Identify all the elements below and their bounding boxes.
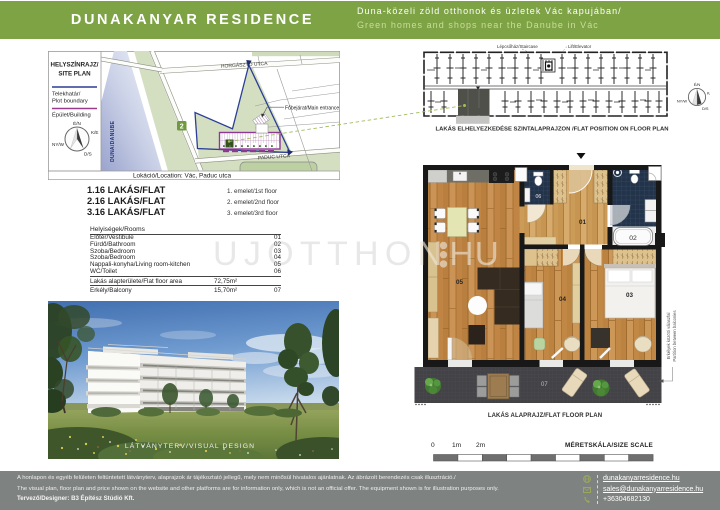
svg-text:NY/W: NY/W [52, 142, 65, 147]
svg-text:06: 06 [536, 194, 542, 200]
svg-text:LÁTVÁNYTERV/VISUAL DESIGN: LÁTVÁNYTERV/VISUAL DESIGN [125, 441, 255, 450]
svg-text:SITE PLAN: SITE PLAN [58, 71, 91, 78]
svg-text:K/E: K/E [91, 130, 98, 135]
svg-text:Telekhatár/: Telekhatár/ [52, 92, 81, 98]
svg-text:Erkélyek közötti válaszfal: Erkélyek közötti válaszfal [666, 313, 671, 360]
svg-text:Lépcsőház/Staircase: Lépcsőház/Staircase [497, 44, 538, 49]
svg-text:03: 03 [626, 292, 634, 299]
svg-text:Lokáció/Location: Vác, Paduc u: Lokáció/Location: Vác, Paduc utca [133, 172, 231, 179]
svg-text:DUNA/DANUBE: DUNA/DANUBE [110, 120, 116, 162]
svg-text:Főbejárat/Main entrance: Főbejárat/Main entrance [285, 106, 339, 112]
svg-text:É/N: É/N [694, 82, 701, 87]
svg-text:01: 01 [579, 219, 587, 226]
svg-text:D/S: D/S [84, 152, 92, 157]
svg-text:Lift/Elevator: Lift/Elevator [568, 44, 592, 49]
svg-text:NY/W: NY/W [677, 99, 687, 104]
svg-text:04: 04 [559, 296, 567, 303]
svg-text:05: 05 [456, 279, 464, 286]
svg-text:Plot boundary: Plot boundary [52, 99, 88, 105]
svg-text:2: 2 [180, 124, 184, 131]
svg-text:Partition between balconies: Partition between balconies [672, 310, 677, 361]
svg-text:D/S: D/S [702, 106, 709, 111]
svg-text:É/N: É/N [73, 120, 81, 126]
svg-text:Épület/Building: Épület/Building [52, 112, 91, 119]
svg-text:02: 02 [629, 235, 637, 242]
svg-text:HELYSZÍNRAJZ/: HELYSZÍNRAJZ/ [51, 61, 99, 69]
svg-text:LAKÁS ELHELYEZKEDÉSE SZINTALAP: LAKÁS ELHELYEZKEDÉSE SZINTALAPRAJZON /FL… [436, 125, 669, 133]
svg-text:07: 07 [541, 382, 548, 388]
svg-text:K/E: K/E [707, 91, 710, 96]
